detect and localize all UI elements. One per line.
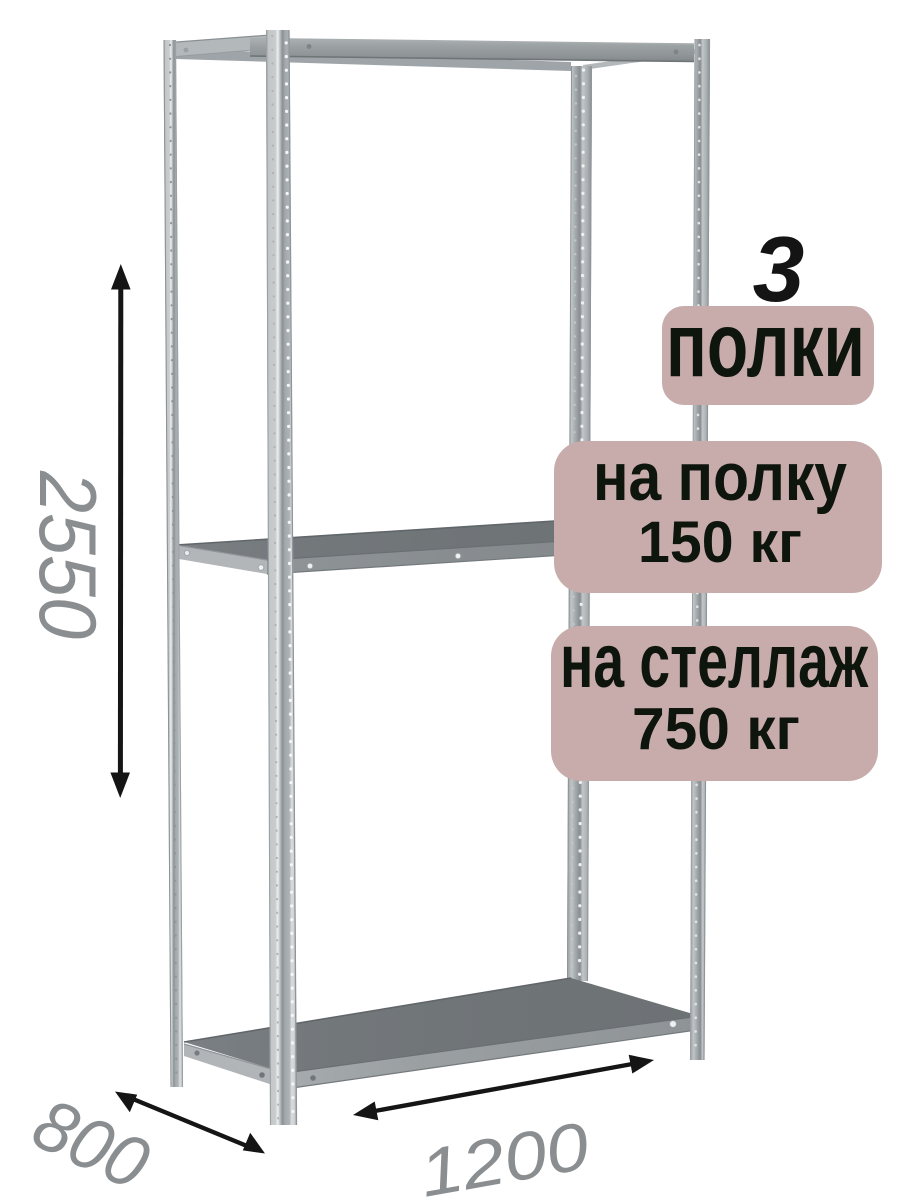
svg-text:на стеллаж: на стеллаж bbox=[560, 619, 869, 704]
svg-text:на полку: на полку bbox=[593, 439, 847, 515]
svg-text:750 кг: 750 кг bbox=[632, 696, 800, 762]
svg-text:150 кг: 150 кг bbox=[638, 510, 802, 575]
svg-text:2550: 2550 bbox=[22, 470, 112, 639]
svg-text:полки: полки bbox=[666, 295, 865, 396]
svg-text:1200: 1200 bbox=[414, 1108, 594, 1200]
